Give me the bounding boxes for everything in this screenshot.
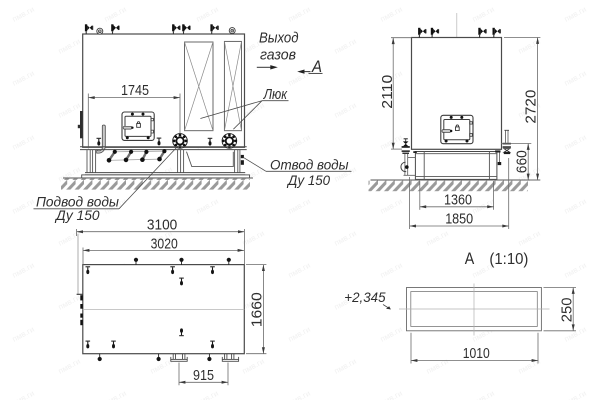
svg-text:(1:10): (1:10) [489, 251, 528, 268]
svg-text:Ду 150: Ду 150 [286, 172, 330, 188]
svg-text:+2,345: +2,345 [344, 289, 385, 305]
svg-text:2720: 2720 [524, 90, 540, 124]
svg-text:Отвод воды: Отвод воды [270, 157, 349, 173]
svg-text:2110: 2110 [380, 75, 396, 109]
svg-text:1010: 1010 [463, 346, 490, 362]
svg-text:Выход: Выход [259, 30, 299, 47]
svg-text:3020: 3020 [151, 235, 178, 252]
svg-text:1660: 1660 [250, 292, 266, 327]
svg-text:250: 250 [559, 298, 575, 323]
svg-text:915: 915 [193, 368, 214, 384]
svg-text:1745: 1745 [121, 83, 149, 99]
svg-text:газов: газов [260, 47, 296, 64]
svg-text:А: А [465, 249, 475, 268]
svg-text:А: А [311, 57, 322, 76]
svg-text:1850: 1850 [445, 212, 473, 228]
svg-text:1360: 1360 [444, 192, 472, 208]
svg-text:Ду 150: Ду 150 [54, 207, 100, 223]
svg-text:Люк: Люк [263, 86, 288, 103]
svg-text:3100: 3100 [147, 217, 177, 234]
svg-text:660: 660 [515, 150, 531, 173]
